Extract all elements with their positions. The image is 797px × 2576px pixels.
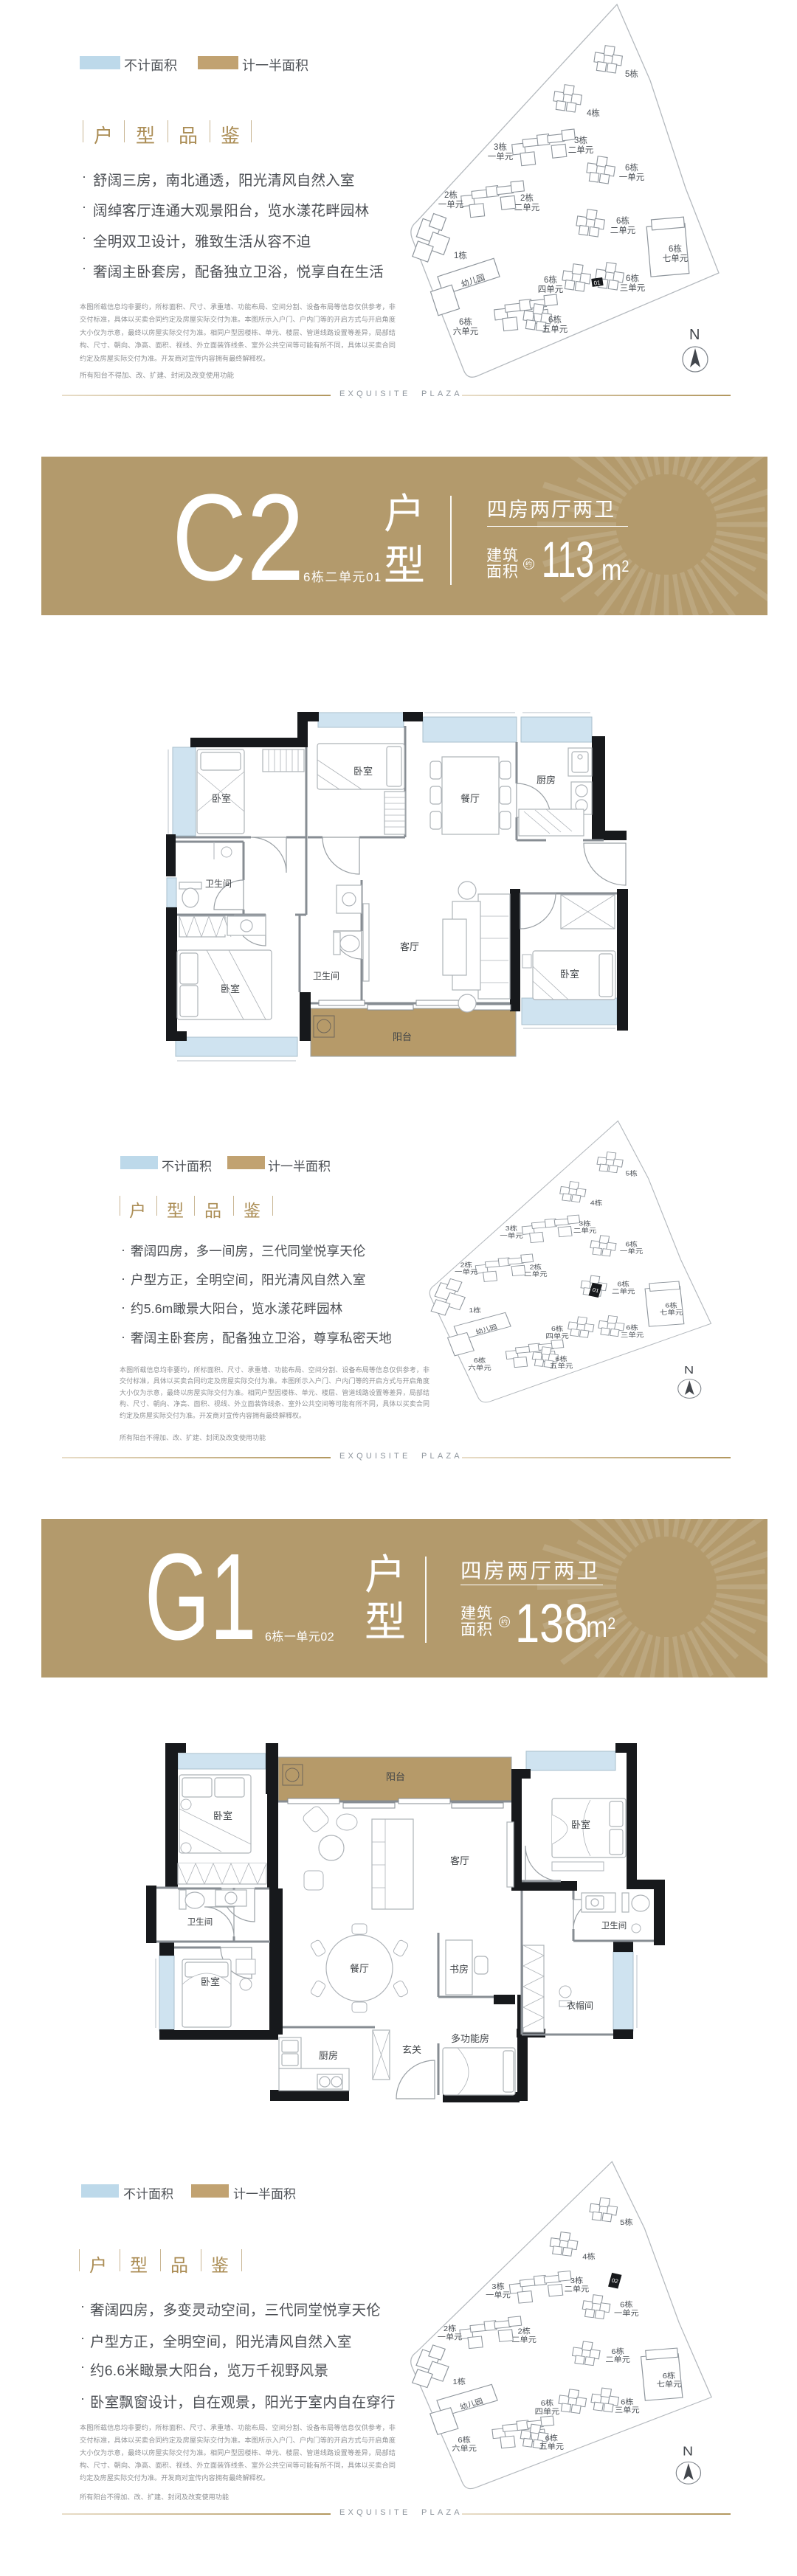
svg-text:客厅: 客厅	[400, 941, 419, 952]
svg-text:厨房: 厨房	[536, 775, 556, 786]
svg-text:阳台: 阳台	[393, 1031, 412, 1042]
svg-text:卧室: 卧室	[212, 793, 231, 804]
svg-text:卧室: 卧室	[201, 1976, 220, 1987]
svg-text:卧室: 卧室	[221, 983, 240, 994]
svg-text:衣帽间: 衣帽间	[567, 2000, 593, 2011]
svg-text:卧室: 卧室	[213, 1810, 232, 1821]
svg-text:客厅: 客厅	[450, 1855, 469, 1866]
svg-text:餐厅: 餐厅	[350, 1963, 369, 1974]
svg-text:01: 01	[593, 279, 601, 286]
svg-text:阳台: 阳台	[386, 1771, 405, 1782]
svg-text:卧室: 卧室	[353, 766, 373, 777]
svg-text:玄关: 玄关	[402, 2044, 421, 2055]
svg-text:卫生间: 卫生间	[187, 1917, 213, 1927]
svg-text:卫生间: 卫生间	[205, 879, 232, 889]
svg-text:卧室: 卧室	[560, 969, 579, 980]
svg-text:厨房: 厨房	[319, 2050, 338, 2061]
svg-text:卧室: 卧室	[571, 1819, 590, 1830]
svg-text:书房: 书房	[449, 1964, 469, 1975]
svg-text:多功能房: 多功能房	[451, 2033, 489, 2044]
svg-text:餐厅: 餐厅	[460, 793, 480, 804]
svg-text:卫生间: 卫生间	[601, 1920, 627, 1931]
svg-text:卫生间: 卫生间	[313, 971, 339, 981]
